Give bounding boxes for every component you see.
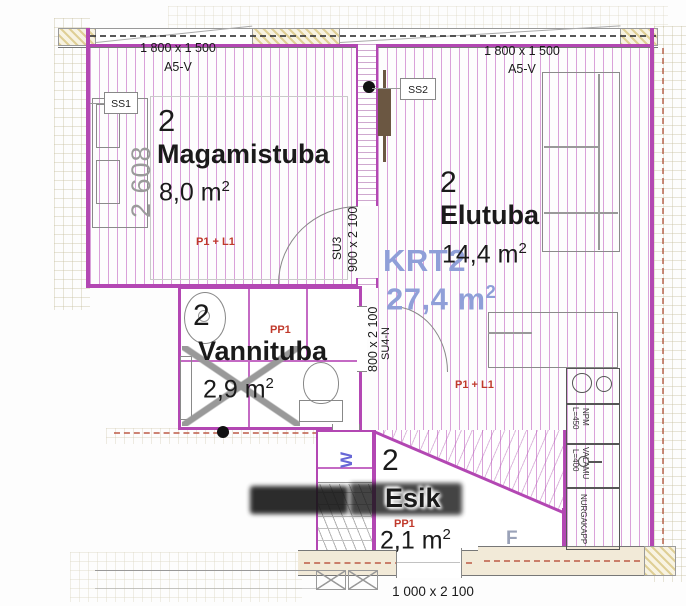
bedroom-area-value: 8,0 xyxy=(159,178,194,206)
top-wall-axis-dashed xyxy=(90,35,656,37)
door-su4-code: SU4-N xyxy=(380,327,392,360)
bathroom-area-unit: m xyxy=(245,375,266,403)
ss2-label: SS2 xyxy=(408,84,428,96)
hallway-area-unit: m xyxy=(422,526,443,554)
dining-table-leaf-line xyxy=(488,332,532,334)
kitchen-bottom-wall xyxy=(478,546,658,576)
livingroom-number: 2 xyxy=(440,166,457,200)
stove-burner-small xyxy=(596,376,612,392)
site-grid-top xyxy=(168,6,668,28)
bed-dimension: 2 608 xyxy=(126,145,157,218)
npm-length-label: L=450 xyxy=(571,407,580,429)
bathroom-name: Vannituba xyxy=(198,336,327,367)
sofa-backrest-line xyxy=(598,74,600,250)
ss1-leader-line xyxy=(90,103,104,104)
sofa xyxy=(542,72,620,252)
npm-label: NPM xyxy=(581,408,590,426)
bathroom-area-exp: 2 xyxy=(266,375,274,392)
bedroom-floor-code: P1 + L1 xyxy=(196,236,235,248)
livingroom-floor-code: P1 + L1 xyxy=(455,379,494,391)
apartment-area-exp: 2 xyxy=(486,281,497,302)
door-su3-size: 900 x 2 100 xyxy=(346,207,360,272)
kitchen-bottom-wall-dashes xyxy=(484,560,650,562)
livingroom-area: 14,4 m2 xyxy=(442,240,527,269)
toilet-tank xyxy=(299,400,343,422)
site-grid-right xyxy=(654,26,686,582)
livingroom-area-value: 14,4 xyxy=(442,240,491,268)
bathroom-area-value: 2,9 xyxy=(203,375,238,403)
junction-dot-bath xyxy=(217,426,229,438)
landing-line-2 xyxy=(95,588,317,589)
bedroom-living-wall xyxy=(356,44,378,206)
apartment-area-value: 27,4 xyxy=(386,281,448,316)
bedroom-number: 2 xyxy=(158,103,175,139)
entrance-door-sill-line xyxy=(397,562,460,563)
kitchen-corner-cabinet xyxy=(566,488,620,550)
dining-table xyxy=(488,312,618,368)
corner-cabinet-label: NURGAKAPP xyxy=(579,494,588,544)
hallway-number: 2 xyxy=(382,444,399,478)
ss2-leader-line xyxy=(372,88,400,89)
landing-xbox-1 xyxy=(316,570,346,590)
ss1-label: SS1 xyxy=(111,98,131,110)
bathroom-number: 2 xyxy=(193,299,210,333)
axis-dashed-right xyxy=(662,48,664,554)
bathroom-floor-code: PP1 xyxy=(270,324,291,336)
sink-faucet-circle xyxy=(578,456,589,467)
hallway-area: 2,1 m2 xyxy=(380,526,451,555)
left-exterior-wall xyxy=(86,28,90,288)
watermark-blob-1 xyxy=(250,486,348,514)
landing-line-1 xyxy=(95,570,317,571)
apartment-area: 27,4 m2 xyxy=(386,281,496,317)
bedroom-name: Magamistuba xyxy=(157,139,330,170)
hallway-area-value: 2,1 xyxy=(380,526,415,554)
door-panel xyxy=(378,88,391,136)
site-grid-left xyxy=(54,18,90,310)
stove-burner-large xyxy=(572,373,592,393)
hallway-name: Esik xyxy=(385,483,441,514)
livingroom-area-exp: 2 xyxy=(518,240,526,257)
bedroom-area-unit: m xyxy=(201,178,222,206)
switch-box-ss1: SS1 xyxy=(104,92,138,114)
sofa-cushion-line-2 xyxy=(544,212,618,214)
livingroom-name: Elutuba xyxy=(440,200,539,231)
sofa-cushion-line-1 xyxy=(544,146,598,148)
switch-box-ss2: SS2 xyxy=(400,78,436,100)
window-left-size: 1 800 x 1 500 xyxy=(118,41,238,55)
bedroom-area-exp: 2 xyxy=(222,178,230,195)
sink-faucet-stem xyxy=(589,461,602,463)
bottom-right-corner-hatch xyxy=(644,546,676,576)
toilet-bowl xyxy=(303,362,339,404)
floor-plan: 2 608 SS1 SS2 NPM L=450 VALAMU L=400 NUR… xyxy=(0,0,686,606)
bed-pillow-2 xyxy=(96,160,120,204)
hallway-area-exp: 2 xyxy=(443,526,451,543)
junction-dot-top xyxy=(363,81,375,93)
fridge-label: F xyxy=(506,528,518,550)
livingroom-area-unit: m xyxy=(498,240,519,268)
right-exterior-wall xyxy=(650,28,654,552)
door-su4-size: 800 x 2 100 xyxy=(366,307,380,372)
site-grid-bottom-left xyxy=(70,552,302,602)
washer-label: W xyxy=(337,452,357,468)
window-left-type: A5-V xyxy=(118,60,238,74)
entrance-door-size: 1 000 x 2 100 xyxy=(358,584,508,599)
bedroom-area: 8,0 m2 xyxy=(159,178,230,207)
window-right-type: A5-V xyxy=(462,62,582,76)
apartment-area-unit: m xyxy=(457,281,485,316)
window-right-size: 1 800 x 1 500 xyxy=(462,44,582,58)
door-su3-code: SU3 xyxy=(330,237,344,260)
bathroom-area: 2,9 m2 xyxy=(203,375,274,404)
